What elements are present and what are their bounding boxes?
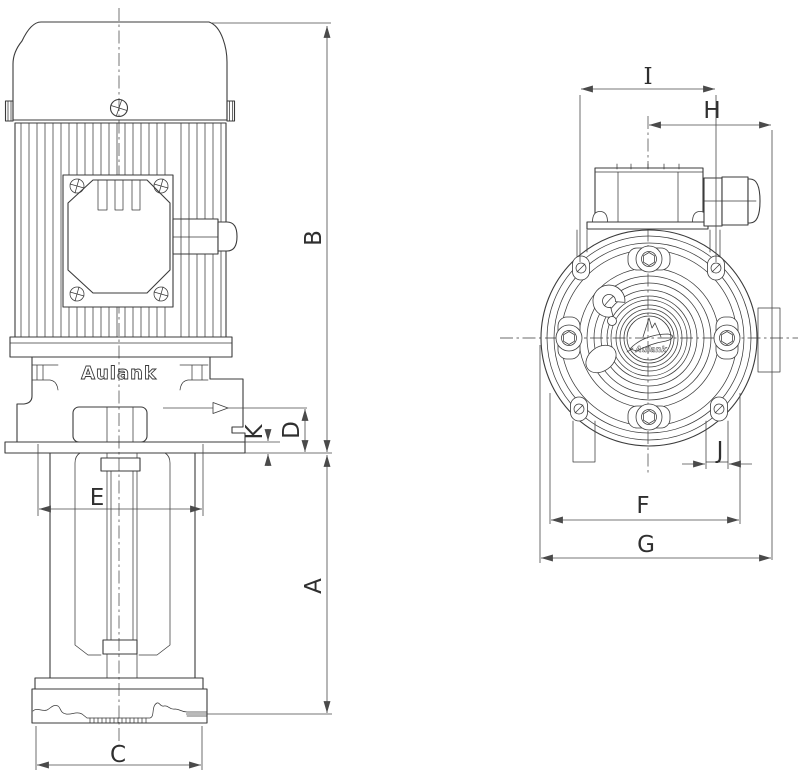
mounting-flange [10,337,232,357]
junction-box [587,164,708,229]
dim-label-E: E [90,485,105,511]
impeller-outline [33,703,207,718]
bolt-boss-left [556,317,582,359]
side-view-dimensions: B A D K E [36,23,332,770]
fan-cover [6,22,235,121]
impeller-hatching [90,718,146,723]
cover-lug-right [227,101,235,121]
logo-peaks-icon [643,318,661,337]
dim-label-J: J [715,438,724,464]
dim-label-C: C [110,742,126,768]
shaft-coupling-lower [103,640,137,654]
pump-head: Aulank [5,357,245,453]
dimension-G: G [540,345,771,563]
dimension-A: A [186,453,332,714]
suction-pocket [73,407,147,442]
top-view: Aulank I H [500,64,798,563]
mounting-plate [5,442,245,453]
mounting-bar [587,222,708,229]
cover-lug-left [6,101,14,121]
dim-label-K: K [242,424,268,440]
side-view: Aulank B [5,8,332,770]
brand-label: Aulank [81,363,157,384]
terminal-box-cover [63,175,173,307]
dimension-E: E [38,444,203,516]
dim-label-I: I [643,64,652,90]
bolt-boss-bottom [628,404,670,430]
dim-label-F: F [636,493,649,519]
flow-arrow-icon [213,403,228,414]
impeller-housing [32,678,207,723]
top-view-dimensions: I H J F G [540,64,772,563]
bolt-boss-top [628,246,670,272]
conduit-box [173,219,237,254]
dim-label-B: B [301,230,327,246]
dimension-D: D [279,409,305,452]
conduit-cap [218,222,237,251]
dim-label-A: A [301,578,327,594]
logo-brand-label: Aulank [634,345,667,354]
dome-screw-icon [593,212,608,223]
dim-label-G: G [637,532,655,558]
bolt-boss-right [714,317,740,359]
pump-dimension-drawing: Aulank B [0,0,803,777]
cable-gland [704,177,760,226]
side-tab [758,308,780,372]
dimension-K: K [242,424,280,466]
dim-label-H: H [703,98,720,124]
dim-label-D: D [279,421,305,439]
dimension-J: J [682,438,752,469]
pump-column [50,453,195,678]
shaft-coupling-upper [101,458,140,471]
outlet-port [163,403,307,414]
small-hole [608,317,617,326]
c-slot-cutout [593,285,625,317]
technical-drawing: Aulank B [0,0,803,777]
